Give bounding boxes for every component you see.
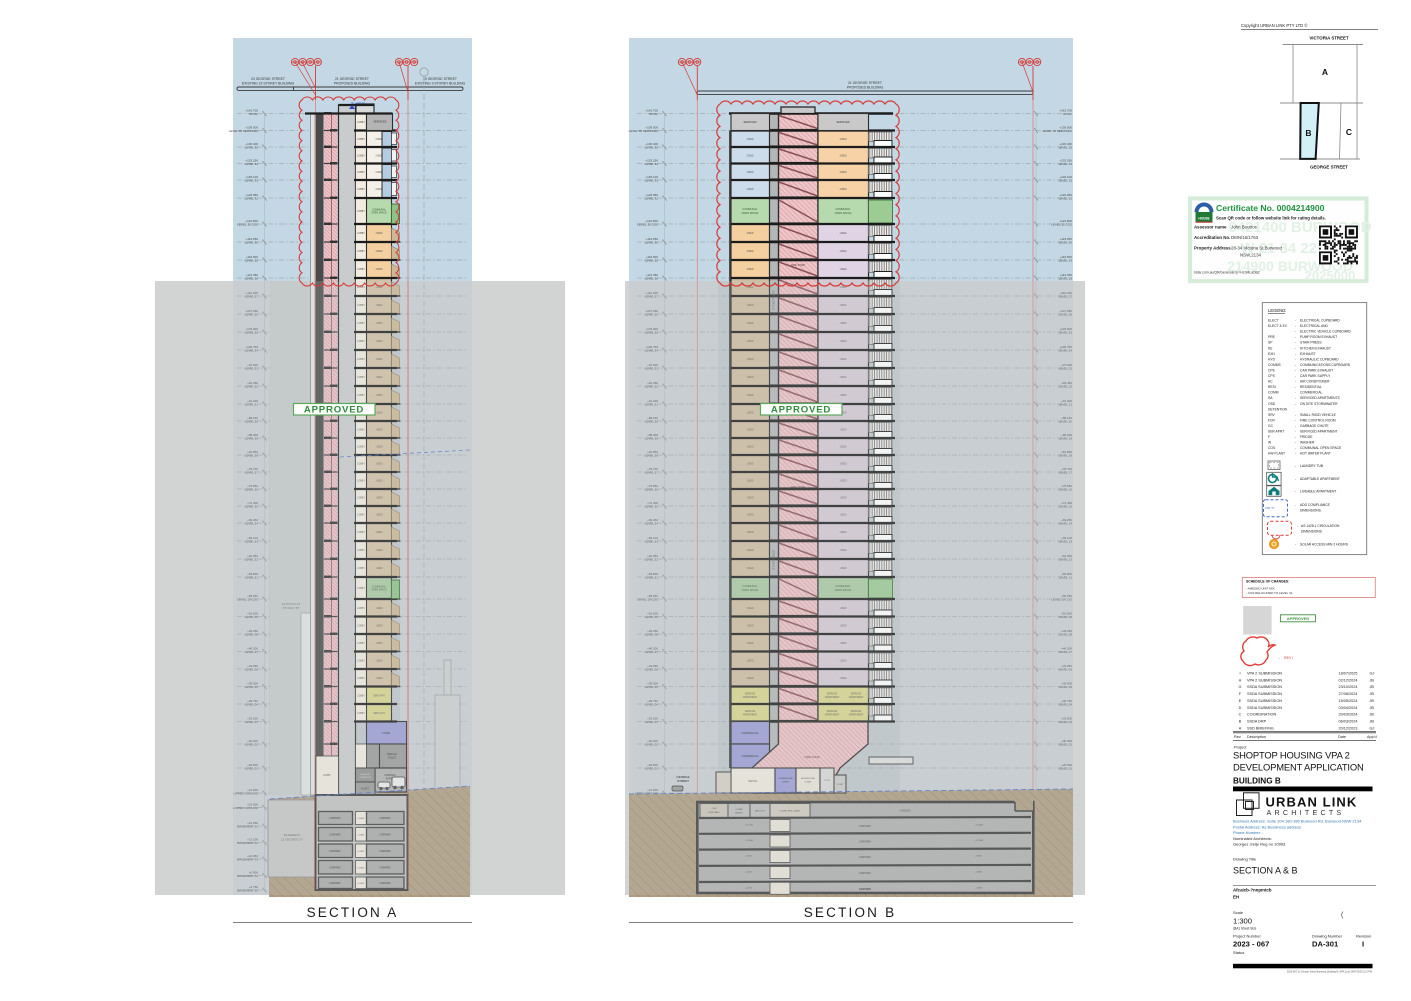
svg-text:23/10/2024: 23/10/2024: [1338, 685, 1357, 689]
svg-text:LEVEL 36 SERVICES: LEVEL 36 SERVICES: [1043, 129, 1072, 133]
svg-text:NSW,2134: NSW,2134: [1240, 253, 1262, 258]
svg-text:3 BED: 3 BED: [840, 154, 847, 157]
svg-text:COMMUNAL OPEN SPACE: COMMUNAL OPEN SPACE: [1300, 446, 1342, 450]
svg-text:CPS: CPS: [1268, 374, 1276, 378]
svg-text:3 BED: 3 BED: [747, 250, 754, 253]
svg-text:COORDINATION: COORDINATION: [1247, 713, 1277, 717]
svg-text:OSD: OSD: [1268, 402, 1276, 406]
svg-text:06/03/2024: 06/03/2024: [1338, 719, 1357, 723]
svg-text:LEVEL 29: LEVEL 29: [645, 259, 659, 263]
svg-text:-: -: [1295, 464, 1296, 468]
svg-text:ELECTRICAL CUPBOARD: ELECTRICAL CUPBOARD: [1300, 319, 1340, 323]
svg-text:E: E: [1239, 699, 1242, 703]
svg-text:LEVEL 31 COS: LEVEL 31 COS: [637, 223, 658, 227]
svg-text:Nominated Architects:: Nominated Architects:: [1233, 836, 1272, 841]
svg-text:CPE: CPE: [1268, 368, 1276, 372]
svg-text:Property Address: Property Address: [1194, 246, 1231, 251]
svg-text:LOBBY: LOBBY: [357, 154, 365, 157]
svg-text:LOBBY: LOBBY: [357, 138, 365, 141]
svg-text:B: B: [1305, 128, 1311, 138]
svg-text:LEVEL 34: LEVEL 34: [1059, 162, 1073, 166]
svg-text:LEVEL 33: LEVEL 33: [1059, 179, 1073, 183]
svg-text:SSDA DRP: SSDA DRP: [1247, 719, 1267, 723]
svg-text:-: -: [1295, 324, 1296, 328]
svg-text:BUILDING B: BUILDING B: [1233, 777, 1281, 786]
svg-text:LEVEL 32: LEVEL 32: [645, 197, 659, 201]
svg-text:EXH: EXH: [1268, 352, 1275, 356]
svg-text:20/03/2024: 20/03/2024: [1338, 713, 1357, 717]
svg-text:HW PLANT: HW PLANT: [1268, 452, 1285, 456]
svg-text:COMMS: COMMS: [1268, 363, 1281, 367]
svg-text:GJ: GJ: [1370, 726, 1375, 730]
svg-text:3 BED: 3 BED: [840, 138, 847, 141]
svg-text:Assessor name: Assessor name: [1194, 225, 1227, 230]
svg-text:2023-067 21 George Street Burw: 2023-067 21 George Street Burwood_Buildi…: [1287, 971, 1372, 974]
svg-text:-: -: [1295, 374, 1296, 378]
svg-text:-: -: [1295, 435, 1296, 439]
svg-text:SOLAR ACCESS MIN 2 HOURS: SOLAR ACCESS MIN 2 HOURS: [1300, 543, 1349, 547]
svg-text:-: -: [1295, 335, 1296, 339]
svg-text:3 BED: 3 BED: [376, 268, 383, 271]
svg-text:2 BED: 2 BED: [747, 154, 754, 157]
svg-text:LEGEND:: LEGEND:: [1268, 308, 1286, 313]
svg-text:ROOF: ROOF: [1063, 112, 1072, 116]
svg-text:OPEN SPACE: OPEN SPACE: [835, 211, 852, 215]
svg-text:I: I: [1239, 672, 1240, 676]
svg-text:ELECTRIC VEHICLE CUPBOARD: ELECTRIC VEHICLE CUPBOARD: [1300, 330, 1352, 334]
svg-text:GC: GC: [1268, 424, 1274, 428]
svg-text:DIMENSIONS: DIMENSIONS: [1300, 509, 1322, 513]
svg-text:-: -: [1295, 352, 1296, 356]
svg-text:- AMEDED UNIT MIX.: - AMEDED UNIT MIX.: [1246, 587, 1275, 591]
svg-text:AC: AC: [1268, 380, 1273, 384]
svg-text:LEVEL 29: LEVEL 29: [1059, 259, 1073, 263]
svg-text:SSD BRIEFING: SSD BRIEFING: [1247, 726, 1274, 730]
svg-text:3 BED: 3 BED: [840, 171, 847, 174]
svg-text:-: -: [1295, 418, 1296, 422]
svg-text:SECTION A: SECTION A: [307, 905, 399, 920]
svg-text:ELECT & EV: ELECT & EV: [1268, 324, 1288, 328]
svg-text:@A1 Sheet Size: @A1 Sheet Size: [1233, 927, 1257, 931]
svg-text:AS 1428.1 CIRCULATION: AS 1428.1 CIRCULATION: [1301, 524, 1340, 528]
svg-text:3 BED: 3 BED: [747, 268, 754, 271]
svg-text:-: -: [1295, 452, 1296, 456]
svg-text:OPEN SPACE: OPEN SPACE: [742, 211, 759, 215]
svg-text:2 BED: 2 BED: [747, 171, 754, 174]
svg-text:1:300: 1:300: [1233, 917, 1252, 926]
svg-text:I: I: [1362, 940, 1364, 949]
svg-text:SRV: SRV: [1268, 413, 1276, 417]
svg-text:Copyright URBAN LINK PTY LTD ©: Copyright URBAN LINK PTY LTD ©: [1241, 23, 1308, 28]
svg-text:COMMUNAL: COMMUNAL: [835, 207, 851, 211]
svg-text:LEVEL 31 COS: LEVEL 31 COS: [1051, 223, 1072, 227]
svg-text:- COS RELOCATED TO LEVEL 31.: - COS RELOCATED TO LEVEL 31.: [1246, 591, 1293, 595]
svg-text:1 BED: 1 BED: [840, 268, 847, 271]
svg-text:21 GEORGE STREET: 21 GEORGE STREET: [848, 81, 882, 85]
svg-text:Status: Status: [1233, 950, 1244, 955]
svg-text:JB: JB: [1370, 719, 1375, 723]
svg-text:ON SITE STORMWATER: ON SITE STORMWATER: [1300, 402, 1338, 406]
svg-text:Revision: Revision: [1356, 934, 1371, 939]
svg-text:COMMUNICATIONS CUPBOARD: COMMUNICATIONS CUPBOARD: [1300, 363, 1351, 367]
svg-text:John Boutros: John Boutros: [1231, 225, 1258, 230]
svg-text:SERVICES: SERVICES: [743, 120, 756, 124]
svg-text:F: F: [1268, 435, 1270, 439]
svg-text:HYDRAULIC CUPBOARD: HYDRAULIC CUPBOARD: [1300, 357, 1339, 361]
svg-text:AIR CONDITIONER: AIR CONDITIONER: [1300, 380, 1330, 384]
svg-text:-: -: [1295, 391, 1296, 395]
svg-text:LEVEL 33: LEVEL 33: [645, 179, 659, 183]
svg-text:LEVEL 30: LEVEL 30: [245, 241, 259, 245]
svg-text:LEVEL 34: LEVEL 34: [245, 162, 259, 166]
svg-text:LOBBY: LOBBY: [357, 250, 365, 253]
svg-text:SSDA SUBMISSION: SSDA SUBMISSION: [1247, 699, 1282, 703]
svg-text:-: -: [1295, 446, 1296, 450]
svg-text:2 BED: 2 BED: [747, 138, 754, 141]
svg-text:COS: COS: [1268, 446, 1276, 450]
svg-text:-: -: [1295, 543, 1296, 547]
svg-text:LOBBY: LOBBY: [357, 188, 365, 191]
svg-text:WASHER: WASHER: [1300, 441, 1315, 445]
svg-text:B: B: [1239, 719, 1242, 723]
svg-text:FIRE STAIR: FIRE STAIR: [791, 263, 805, 267]
svg-text:CAR PARK SUPPLY: CAR PARK SUPPLY: [1300, 374, 1331, 378]
svg-text:APPROVED: APPROVED: [771, 404, 831, 415]
svg-text:STAIR PRESS: STAIR PRESS: [1300, 341, 1322, 345]
svg-text:ADAPTABLE APARTMENT: ADAPTABLE APARTMENT: [1300, 477, 1340, 481]
svg-text:EH: EH: [1233, 895, 1239, 900]
svg-text:Afcaicb-?nnpmtcb: Afcaicb-?nnpmtcb: [1233, 888, 1272, 893]
svg-text:-: -: [1295, 385, 1296, 389]
svg-text:KITCHEN EXHAUST: KITCHEN EXHAUST: [1300, 346, 1331, 350]
svg-text:Georges Jreije Reg no 10993: Georges Jreije Reg no 10993: [1233, 842, 1286, 847]
svg-text:PROPOSED BUILDING: PROPOSED BUILDING: [334, 82, 371, 86]
svg-text:LEVEL 35: LEVEL 35: [645, 146, 659, 150]
svg-text:LEVEL 31 COS: LEVEL 31 COS: [237, 223, 258, 227]
svg-text:-: -: [1295, 368, 1296, 372]
svg-text:Certificate No. 0004214900: Certificate No. 0004214900: [1216, 203, 1325, 213]
svg-text:21 GEORGE STREET: 21 GEORGE STREET: [335, 77, 369, 81]
svg-text:LEVEL 35: LEVEL 35: [245, 146, 259, 150]
svg-text:ADG COMPLIANCE: ADG COMPLIANCE: [1300, 503, 1331, 507]
svg-text:PROPOSED BUILDING: PROPOSED BUILDING: [847, 86, 884, 90]
svg-text:RESIDENTIAL: RESIDENTIAL: [1300, 385, 1322, 389]
svg-text:EXISTING 23 STOREY BUILDING: EXISTING 23 STOREY BUILDING: [242, 82, 295, 86]
svg-text:LEVEL 28: LEVEL 28: [645, 277, 659, 281]
svg-text:LEVEL 30: LEVEL 30: [1059, 241, 1073, 245]
svg-text:LEVEL 28: LEVEL 28: [1059, 277, 1073, 281]
svg-text:-: -: [1295, 357, 1296, 361]
svg-text:HOUSE: HOUSE: [1198, 217, 1209, 221]
svg-text:SERVICED APARTMENT: SERVICED APARTMENT: [1300, 430, 1338, 434]
svg-text:COMMUNAL: COMMUNAL: [742, 207, 758, 211]
svg-text:LOBBY: LOBBY: [357, 121, 365, 124]
svg-text:-: -: [1297, 524, 1298, 528]
svg-text:02/12/2024: 02/12/2024: [1338, 678, 1357, 682]
svg-text:SSDA SUBMISSION: SSDA SUBMISSION: [1247, 692, 1282, 696]
svg-text:EXHAUST: EXHAUST: [1300, 352, 1316, 356]
svg-text:APPROVED: APPROVED: [304, 404, 364, 415]
svg-text:HOT WATER PLANT: HOT WATER PLANT: [1300, 452, 1331, 456]
svg-text:27/08/2024: 27/08/2024: [1338, 692, 1357, 696]
svg-text:LEVEL 29: LEVEL 29: [245, 259, 259, 263]
svg-text:Business Address: Suite 204 18: Business Address: Suite 204 180-186 Burw…: [1233, 819, 1362, 824]
svg-text:LEVEL 32: LEVEL 32: [1059, 197, 1073, 201]
svg-text:Scan QR code or follow website: Scan QR code or follow website link for …: [1216, 216, 1326, 221]
svg-text:OPEN SPACE: OPEN SPACE: [371, 212, 387, 215]
svg-text:3 BED: 3 BED: [376, 232, 383, 235]
svg-text:DA-301: DA-301: [1312, 940, 1339, 949]
svg-text:ELECT: ELECT: [1268, 319, 1279, 323]
svg-text:C: C: [1239, 713, 1242, 717]
svg-text:VPA 2 SUBMISSION: VPA 2 SUBMISSION: [1247, 672, 1282, 676]
svg-text:20/12/2023: 20/12/2023: [1338, 726, 1357, 730]
svg-text:JB: JB: [1370, 685, 1375, 689]
svg-text:-: -: [1295, 402, 1296, 406]
svg-text:15/05/2024: 15/05/2024: [1338, 699, 1357, 703]
svg-text:Postal Address: As Bussiness a: Postal Address: As Bussiness address: [1233, 824, 1301, 829]
svg-text:SCHEDULE OF CHANGES:: SCHEDULE OF CHANGES:: [1246, 580, 1289, 584]
svg-text:Phone Number: -: Phone Number: -: [1233, 830, 1264, 835]
svg-text:18/07/2025: 18/07/2025: [1338, 672, 1357, 676]
svg-text:RESI: RESI: [1268, 385, 1276, 389]
svg-text:JB: JB: [1370, 713, 1375, 717]
svg-text:Accreditation No.: Accreditation No.: [1194, 235, 1230, 240]
svg-text:LAUNDRY TUB: LAUNDRY TUB: [1300, 464, 1324, 468]
svg-text:GEORGE STREET: GEORGE STREET: [1310, 165, 1348, 170]
svg-text:-: -: [1295, 413, 1296, 417]
svg-text:Scale: Scale: [1233, 910, 1244, 915]
svg-text:JB: JB: [1370, 706, 1375, 710]
svg-text:-: -: [1295, 490, 1296, 494]
svg-text:DMN/16/1763: DMN/16/1763: [1231, 235, 1259, 240]
svg-text:VPA 2 SUBMISSION: VPA 2 SUBMISSION: [1247, 678, 1282, 682]
svg-text:Drawing Title: Drawing Title: [1233, 857, 1257, 862]
svg-text:-: -: [1295, 477, 1296, 481]
svg-text:DEVELOPMENT APPLICATION: DEVELOPMENT APPLICATION: [1233, 762, 1364, 773]
svg-text:LOBBY: LOBBY: [357, 268, 365, 271]
svg-text:LEVEL 30: LEVEL 30: [645, 241, 659, 245]
svg-text:SSDA SUBMISSION: SSDA SUBMISSION: [1247, 706, 1282, 710]
svg-text:-: -: [1295, 430, 1296, 434]
svg-text:LEVEL 36 SERVICES: LEVEL 36 SERVICES: [629, 129, 658, 133]
svg-text:DETENTION: DETENTION: [1268, 407, 1288, 411]
svg-text:-: -: [1295, 363, 1296, 367]
svg-text:SHOPTOP HOUSING VPA 2: SHOPTOP HOUSING VPA 2: [1233, 750, 1350, 761]
svg-text:App'd: App'd: [1367, 735, 1377, 739]
svg-text:-: -: [1295, 441, 1296, 445]
svg-text:HYD: HYD: [1268, 357, 1276, 361]
svg-text:-: -: [1295, 319, 1296, 323]
svg-text:D: D: [1239, 706, 1242, 710]
svg-text:LOBBY: LOBBY: [357, 171, 365, 174]
svg-text:2 BED: 2 BED: [747, 188, 754, 191]
svg-text:LOBBY: LOBBY: [357, 210, 365, 213]
svg-text:PUMP ROOM EXHAUST: PUMP ROOM EXHAUST: [1300, 335, 1337, 339]
svg-text:Project Number: Project Number: [1233, 934, 1261, 939]
svg-text:LEVEL 28: LEVEL 28: [245, 277, 259, 281]
svg-text:FRIDGE: FRIDGE: [1300, 435, 1313, 439]
svg-text:3 BED: 3 BED: [840, 188, 847, 191]
svg-text:SER APRT: SER APRT: [1268, 430, 1284, 434]
svg-text:Rev: Rev: [1234, 735, 1241, 739]
svg-text:1 BED: 1 BED: [840, 250, 847, 253]
svg-text:LEVEL 35: LEVEL 35: [1059, 146, 1073, 150]
svg-text:DIM "X": DIM "X": [1266, 506, 1275, 510]
svg-text:COMMERCIAL: COMMERCIAL: [1300, 391, 1323, 395]
svg-text:VICTORIA STREET: VICTORIA STREET: [1309, 36, 1349, 41]
svg-text:ELECTRICAL AND: ELECTRICAL AND: [1300, 324, 1329, 328]
svg-text:ROOF: ROOF: [649, 112, 658, 116]
svg-text:-: -: [1295, 503, 1296, 507]
svg-text:-: -: [1295, 380, 1296, 384]
svg-text:03/04/2024: 03/04/2024: [1338, 706, 1357, 710]
svg-text:LIVEABLE APARTMENT: LIVEABLE APARTMENT: [1300, 490, 1336, 494]
svg-text:SERVICES: SERVICES: [836, 120, 849, 124]
svg-text:JB: JB: [1370, 678, 1375, 682]
svg-text:FCR: FCR: [1268, 418, 1275, 422]
svg-text:-: -: [1295, 346, 1296, 350]
svg-text:SECTION A & B: SECTION A & B: [1233, 866, 1298, 876]
svg-text:28-34 Victoria St,Burwood: 28-34 Victoria St,Burwood: [1231, 246, 1282, 251]
svg-text:C: C: [1346, 127, 1352, 137]
svg-text:-: -: [1295, 396, 1296, 400]
svg-text:ROOF: ROOF: [249, 112, 258, 116]
svg-text:SECTION B: SECTION B: [804, 905, 897, 920]
svg-text:SERVICES: SERVICES: [373, 120, 386, 124]
svg-text:Drawing Number: Drawing Number: [1312, 934, 1343, 939]
svg-text:LEVEL 34: LEVEL 34: [645, 162, 659, 166]
svg-text:DIMENSIONS: DIMENSIONS: [1301, 530, 1323, 534]
svg-text:-: -: [1295, 424, 1296, 428]
svg-text:A: A: [1239, 726, 1242, 730]
svg-text:APPROVED: APPROVED: [1287, 616, 1310, 621]
svg-text:LEVEL 32: LEVEL 32: [245, 197, 259, 201]
svg-text:COMM: COMM: [1268, 391, 1279, 395]
svg-text:Date: Date: [1338, 735, 1346, 739]
svg-text:2023 - 067: 2023 - 067: [1233, 940, 1269, 949]
svg-text:CAR PARK EXHAUST: CAR PARK EXHAUST: [1300, 368, 1333, 372]
svg-text:ARCHITECTS: ARCHITECTS: [1267, 808, 1345, 817]
svg-text:RL +142.70: RL +142.70: [351, 101, 365, 105]
svg-text:LEVEL 36 SERVICES: LEVEL 36 SERVICES: [229, 129, 258, 133]
svg-text:H: H: [1239, 678, 1242, 682]
svg-text:3 BED: 3 BED: [376, 250, 383, 253]
svg-text:PRE: PRE: [1268, 335, 1276, 339]
svg-text:JB: JB: [1370, 692, 1375, 696]
svg-text:FIRE CONTROL ROOM: FIRE CONTROL ROOM: [1300, 418, 1336, 422]
svg-text:A: A: [1322, 67, 1328, 77]
svg-text:1 BED: 1 BED: [840, 232, 847, 235]
svg-text:REV I: REV I: [1284, 656, 1293, 660]
svg-text:SSDA SUBMISSION: SSDA SUBMISSION: [1247, 685, 1282, 689]
svg-text:SMALL RIGID VEHICLE: SMALL RIGID VEHICLE: [1300, 413, 1337, 417]
svg-text:LEVEL 33: LEVEL 33: [245, 179, 259, 183]
svg-text:hstar.com.au/QR/Generate?p=HLh: hstar.com.au/QR/Generate?p=HLhMLaDBZ: [1194, 271, 1260, 275]
svg-text:23 GEORGE STREET: 23 GEORGE STREET: [251, 77, 285, 81]
svg-text:3 BED: 3 BED: [747, 232, 754, 235]
svg-text:2025000: 2025000: [1305, 268, 1356, 283]
svg-text:GJ: GJ: [1370, 672, 1375, 676]
svg-text:19 GEORGE STREET: 19 GEORGE STREET: [423, 77, 457, 81]
svg-text:Description: Description: [1247, 735, 1266, 739]
svg-text:-: -: [1295, 341, 1296, 345]
svg-text:GARBAGE CHUTE: GARBAGE CHUTE: [1300, 424, 1329, 428]
svg-text:EXISTING 3 STOREY BUILDING: EXISTING 3 STOREY BUILDING: [415, 82, 466, 86]
svg-text:JB: JB: [1370, 699, 1375, 703]
svg-text:SERVICED APARTMENTS: SERVICED APARTMENTS: [1300, 396, 1341, 400]
svg-text:-: -: [1295, 330, 1296, 334]
svg-text:LOBBY: LOBBY: [357, 232, 365, 235]
svg-text:G: G: [1239, 685, 1242, 689]
